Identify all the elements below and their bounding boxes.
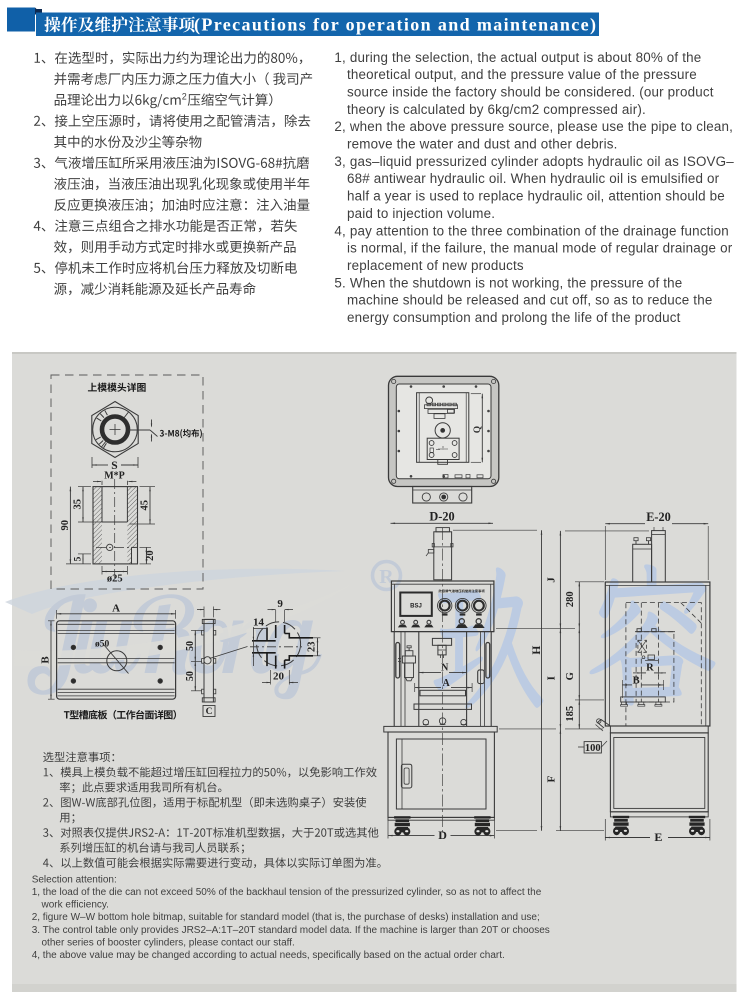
svg-text:A: A [442, 678, 450, 689]
svg-text:replacement of new products: replacement of new products [347, 258, 524, 273]
svg-text:C: C [206, 707, 213, 717]
svg-text:280: 280 [565, 591, 576, 607]
svg-text:paid to injection volume.: paid to injection volume. [347, 206, 495, 221]
svg-text:68# antiwear hydraulic oil. Wh: 68# antiwear hydraulic oil. When hydraul… [347, 171, 720, 186]
svg-text:A: A [112, 603, 120, 615]
svg-text:E-20: E-20 [646, 510, 671, 524]
svg-text:E: E [654, 830, 662, 844]
svg-text:20: 20 [273, 671, 285, 683]
svg-text:20: 20 [145, 550, 156, 561]
svg-text:B: B [40, 656, 52, 664]
svg-text:4, pay attention to the three: 4, pay attention to the three combinatio… [334, 223, 729, 238]
svg-text:100: 100 [585, 743, 601, 754]
svg-text:14: 14 [253, 617, 265, 629]
svg-text:machine should be released and: machine should be released and cut off, … [347, 293, 712, 308]
svg-text:4, the above value may be chan: 4, the above value may be changed accord… [32, 950, 505, 961]
svg-text:23: 23 [307, 642, 318, 653]
svg-text:45: 45 [140, 500, 151, 511]
svg-text:D: D [438, 828, 447, 842]
svg-text:ø50: ø50 [95, 640, 110, 650]
svg-text:R: R [646, 663, 654, 674]
svg-text:D-20: D-20 [429, 510, 454, 524]
svg-text:35: 35 [73, 499, 84, 510]
svg-text:B: B [633, 675, 640, 686]
svg-text:(Precautions for operation and: (Precautions for operation and maintenan… [194, 15, 596, 36]
svg-text:Q: Q [473, 426, 483, 433]
svg-text:is normal, if the failure, the: is normal, if the failure, the manual mo… [347, 241, 733, 256]
svg-text:5. When the shutdown is not wo: 5. When the shutdown is not working, the… [334, 275, 682, 290]
svg-text:2, when the above pressure sou: 2, when the above pressure source, pleas… [334, 119, 733, 134]
svg-text:BSJ: BSJ [410, 603, 422, 609]
svg-text:1, the load of the die can not: 1, the load of the die can not exceed 50… [32, 887, 542, 898]
svg-text:source inside the factory shou: source inside the factory should be cons… [347, 85, 714, 100]
svg-text:1, during the selection, the a: 1, during the selection, the actual outp… [334, 50, 701, 65]
svg-text:185: 185 [565, 706, 576, 722]
svg-text:theory is calculated by 6kg/cm: theory is calculated by 6kg/cm2 compress… [347, 102, 646, 117]
svg-text:G: G [565, 672, 576, 680]
svg-text:9: 9 [277, 598, 283, 610]
svg-text:2: 2 [182, 91, 187, 101]
svg-text:M*P: M*P [104, 471, 125, 482]
svg-text:2, figure W–W bottom hole bitm: 2, figure W–W bottom hole bitmap, suitab… [32, 912, 540, 923]
svg-text:ø25: ø25 [107, 574, 123, 585]
svg-text:50: 50 [185, 641, 196, 651]
svg-text:half a year is used to replace: half a year is used to replace hydraulic… [347, 189, 725, 204]
svg-text:3, gas–liquid pressurized cyli: 3, gas–liquid pressurized cylinder adopt… [334, 154, 734, 169]
svg-text:I: I [546, 676, 558, 680]
svg-text:J: J [546, 577, 558, 583]
svg-text:work efficiency.: work efficiency. [41, 900, 109, 911]
svg-text:F: F [546, 775, 558, 782]
svg-text:90: 90 [60, 520, 71, 531]
svg-text:theoretical output, and the pr: theoretical output, and the pressure val… [347, 67, 697, 82]
svg-text:energy consumption and prolong: energy consumption and prolong the life … [347, 310, 681, 325]
svg-text:5: 5 [74, 556, 84, 561]
svg-text:H: H [531, 646, 543, 655]
svg-text:other series of booster cylind: other series of booster cylinders, pleas… [42, 938, 295, 949]
svg-text:3. The control table only prov: 3. The control table only provides JRS2–… [32, 925, 550, 936]
svg-text:remove the water and dust and: remove the water and dust and other debr… [347, 137, 618, 152]
svg-text:50: 50 [185, 671, 196, 681]
svg-text:Selection attention:: Selection attention: [32, 874, 117, 885]
